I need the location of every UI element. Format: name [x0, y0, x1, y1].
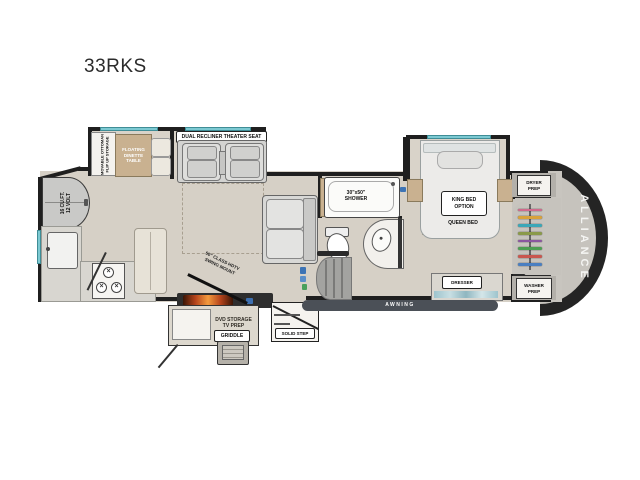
shower-head-icon: [391, 182, 395, 186]
entry-steps: [316, 257, 352, 300]
step-line: [341, 258, 343, 298]
floorplan-diagram: MOVABLE OTTOMAN FLIP UP STORAGE FLOATING…: [0, 0, 640, 480]
ottoman-storage-label: MOVABLE OTTOMAN FLIP UP STORAGE: [92, 133, 115, 175]
faucet-icon: [46, 247, 50, 251]
hanger-item: [518, 240, 542, 243]
dinette-table: FLOATING DINETTE TABLE: [115, 134, 152, 177]
shower: 30"x50" SHOWER: [324, 177, 400, 218]
solid-step-label: SOLID STEP: [275, 328, 315, 339]
dryer-prep-label: DRYER PREP: [517, 175, 551, 196]
burner-icon: ×: [103, 267, 114, 278]
utility-blue-icon: [300, 267, 306, 274]
refrigerator-label: 16 CU.FT. 12 VOLT: [43, 178, 89, 228]
recliner-back: [230, 146, 260, 160]
step-handrail: [317, 251, 349, 256]
dinette-chair: [151, 157, 171, 176]
hanger-item: [518, 224, 542, 227]
dresser-front: [434, 291, 498, 298]
shower-label: 30"x50" SHOWER: [331, 184, 381, 208]
hanger-item: [518, 247, 542, 250]
burner-icon: ×: [111, 282, 122, 293]
kitchen-island: [134, 228, 167, 294]
window: [427, 135, 491, 139]
step-line: [333, 259, 335, 298]
hanger-item: [518, 255, 542, 258]
dinette-chair: [151, 138, 171, 157]
sofa-cushion: [266, 199, 304, 229]
recliner-cushion: [230, 160, 260, 178]
brand-alliance-label: ALLIANCE: [575, 160, 591, 316]
washer-prep-label: WASHER PREP: [516, 278, 552, 299]
wall: [266, 172, 406, 176]
hanger-rack: [517, 206, 543, 268]
outdoor-kitchen-panel: [172, 309, 211, 340]
recliner: [182, 143, 221, 181]
vanity-edge: [398, 218, 402, 268]
compartment-door-line: [158, 344, 179, 368]
recliner-back: [187, 146, 217, 160]
awning-bar: AWNING: [302, 300, 498, 311]
recliner: [225, 143, 264, 181]
window: [100, 127, 158, 131]
king-bed-option-label: KING BED OPTION: [441, 191, 487, 216]
queen-bed-label: QUEEN BED: [441, 219, 485, 228]
kitchen-sink: [47, 232, 78, 269]
utility-green-icon: [302, 284, 307, 290]
floorplan-page: 33RKS: [0, 0, 640, 480]
dresser-label: DRESSER: [442, 276, 482, 289]
faucet-icon: [379, 236, 383, 240]
utility-blue-icon: [300, 276, 306, 282]
island-divider: [150, 232, 151, 290]
griddle: [217, 341, 249, 365]
recliner-cushion: [187, 160, 217, 178]
theater-seat: [177, 140, 267, 183]
hanger-item: [518, 263, 542, 266]
step-line: [274, 323, 290, 325]
refrigerator: 16 CU.FT. 12 VOLT: [42, 177, 90, 229]
nightstand: [497, 179, 513, 202]
bed: KING BED OPTION QUEEN BED: [420, 140, 500, 239]
pillow: [437, 151, 483, 169]
washer-prep-room: WASHER PREP: [512, 276, 556, 300]
hanger-item: [518, 216, 542, 219]
nightstand: [407, 179, 423, 202]
step-line: [274, 314, 300, 316]
sofa-back: [303, 198, 316, 261]
ottoman-storage: MOVABLE OTTOMAN FLIP UP STORAGE: [91, 132, 116, 176]
griddle-surface: [222, 345, 244, 360]
hanger-item: [518, 209, 542, 212]
dryer-prep-room: DRYER PREP: [512, 173, 556, 197]
vent-icon: [400, 187, 406, 192]
wall: [406, 135, 410, 181]
sofa: [262, 195, 318, 264]
hanger-item: [518, 232, 542, 235]
burner-icon: ×: [96, 282, 107, 293]
dresser: DRESSER: [431, 273, 503, 301]
sofa-cushion: [266, 229, 304, 259]
step-line: [325, 260, 327, 296]
